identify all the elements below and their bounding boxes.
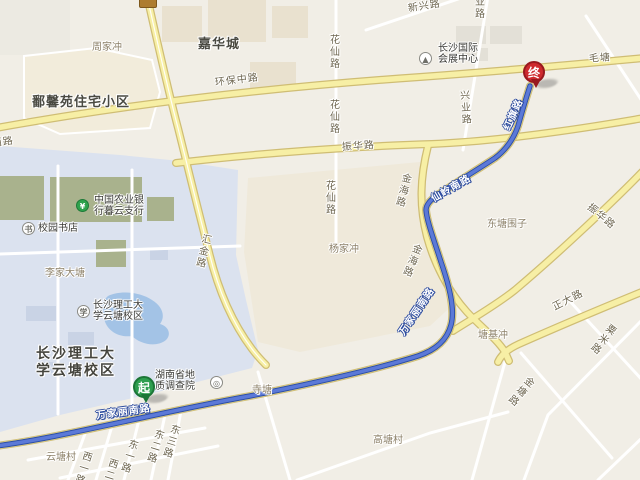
- road-label-huaxianlu-3: 花仙路: [323, 180, 334, 216]
- poi-bank-line2[interactable]: 行暮云支行: [94, 207, 144, 218]
- university-icon[interactable]: 学: [77, 305, 90, 318]
- poi-bookstore[interactable]: 校园书店: [38, 224, 78, 235]
- poi-geology-line1[interactable]: 湖南省地: [155, 371, 195, 382]
- poi-convention-line1[interactable]: 长沙国际: [438, 44, 478, 55]
- poi-geology-line2[interactable]: 质调查院: [155, 382, 195, 393]
- corner-block: [0, 0, 70, 55]
- town-label-poxinyuan: 鄱馨苑住宅小区: [32, 96, 130, 110]
- area-label-gaotangcun: 高塘村: [373, 436, 403, 447]
- area-label-dongtangweizi: 东塘围子: [487, 220, 527, 231]
- road-label-maotang: 毛塘: [589, 53, 612, 65]
- convention-center-icon[interactable]: ▲: [419, 52, 432, 65]
- campus-name-line2: 学云塘校区: [36, 364, 116, 379]
- area-label-lijiadatang: 李家大塘: [45, 269, 85, 280]
- geology-icon[interactable]: ◎: [210, 376, 223, 389]
- area-label-tangjichong: 塘基冲: [478, 331, 508, 342]
- end-marker-label: 终: [528, 66, 540, 80]
- poi-university-line1[interactable]: 长沙理工大: [93, 301, 143, 312]
- marker-tail: [141, 394, 151, 403]
- area-label-yangjiachong: 杨家冲: [329, 245, 359, 256]
- road-number-badge-partial: [139, 0, 157, 8]
- area-label-zhoujiachong: 周家冲: [92, 43, 122, 54]
- road-label-xingyelu-top: 兴业路: [472, 0, 483, 20]
- route-start-marker[interactable]: 起: [133, 376, 155, 398]
- marker-tail: [531, 79, 541, 88]
- route-end-marker[interactable]: 终: [523, 61, 545, 83]
- bank-icon[interactable]: ¥: [76, 199, 89, 212]
- map-canvas[interactable]: 周家冲 嘉华城 鄱馨苑住宅小区 李家大塘 杨家冲 东塘围子 塘基冲 高塘村 云塘…: [0, 0, 640, 480]
- poi-bank-line1[interactable]: 中国农业银: [94, 196, 144, 207]
- road-label-xingyelu: 兴业路: [457, 90, 470, 127]
- poi-convention-line2[interactable]: 会展中心: [438, 55, 478, 66]
- bookstore-icon[interactable]: 书: [22, 222, 35, 235]
- road-label-huaxianlu-1: 花仙路: [327, 34, 338, 70]
- area-label-yuntangcun: 云塘村: [46, 453, 76, 464]
- poi-university-line2[interactable]: 学云塘校区: [93, 312, 143, 323]
- area-label-sitang: 寺塘: [252, 386, 272, 397]
- start-marker-label: 起: [138, 381, 150, 395]
- road-label-huaxianlu-2: 花仙路: [327, 99, 338, 135]
- town-label-jiahuacheng: 嘉华城: [198, 38, 240, 52]
- campus-name-line1: 长沙理工大: [36, 347, 116, 362]
